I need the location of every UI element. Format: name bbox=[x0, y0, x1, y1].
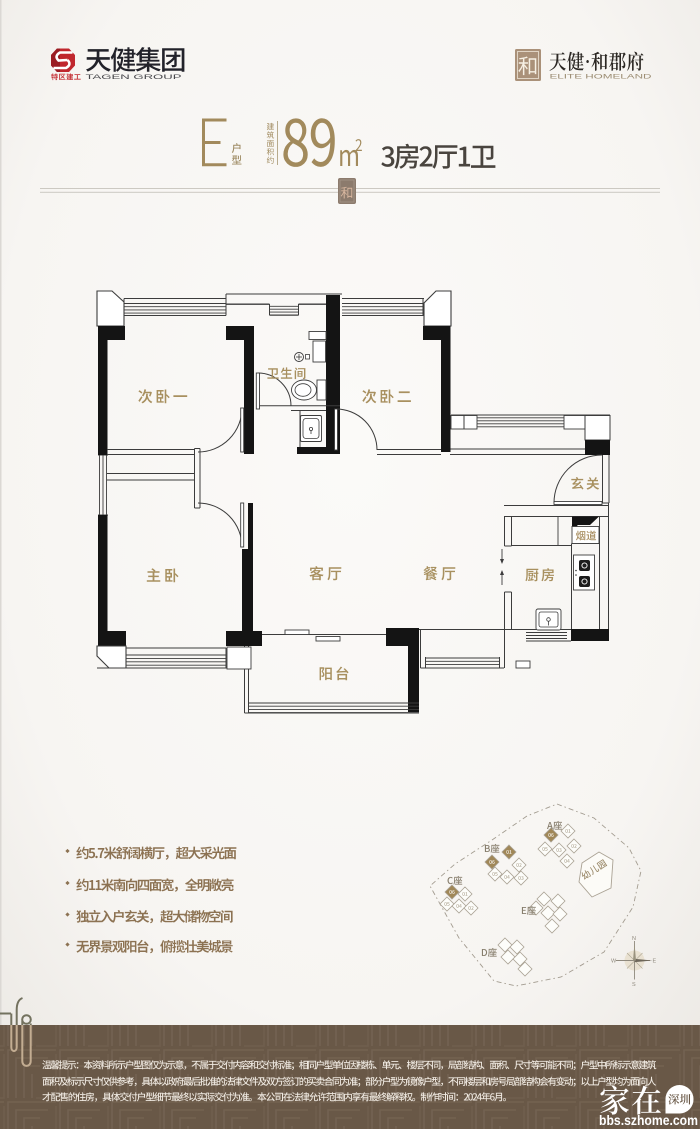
svg-text:TAGEN GROUP: TAGEN GROUP bbox=[86, 74, 182, 81]
svg-text:bbs.szhome.com: bbs.szhome.com bbox=[599, 1112, 698, 1128]
svg-text:ELITE HOMELAND: ELITE HOMELAND bbox=[550, 74, 653, 81]
svg-text:E: E bbox=[653, 959, 657, 965]
svg-text:W: W bbox=[611, 959, 617, 965]
svg-text:S: S bbox=[632, 982, 636, 988]
svg-text:N: N bbox=[632, 936, 636, 942]
